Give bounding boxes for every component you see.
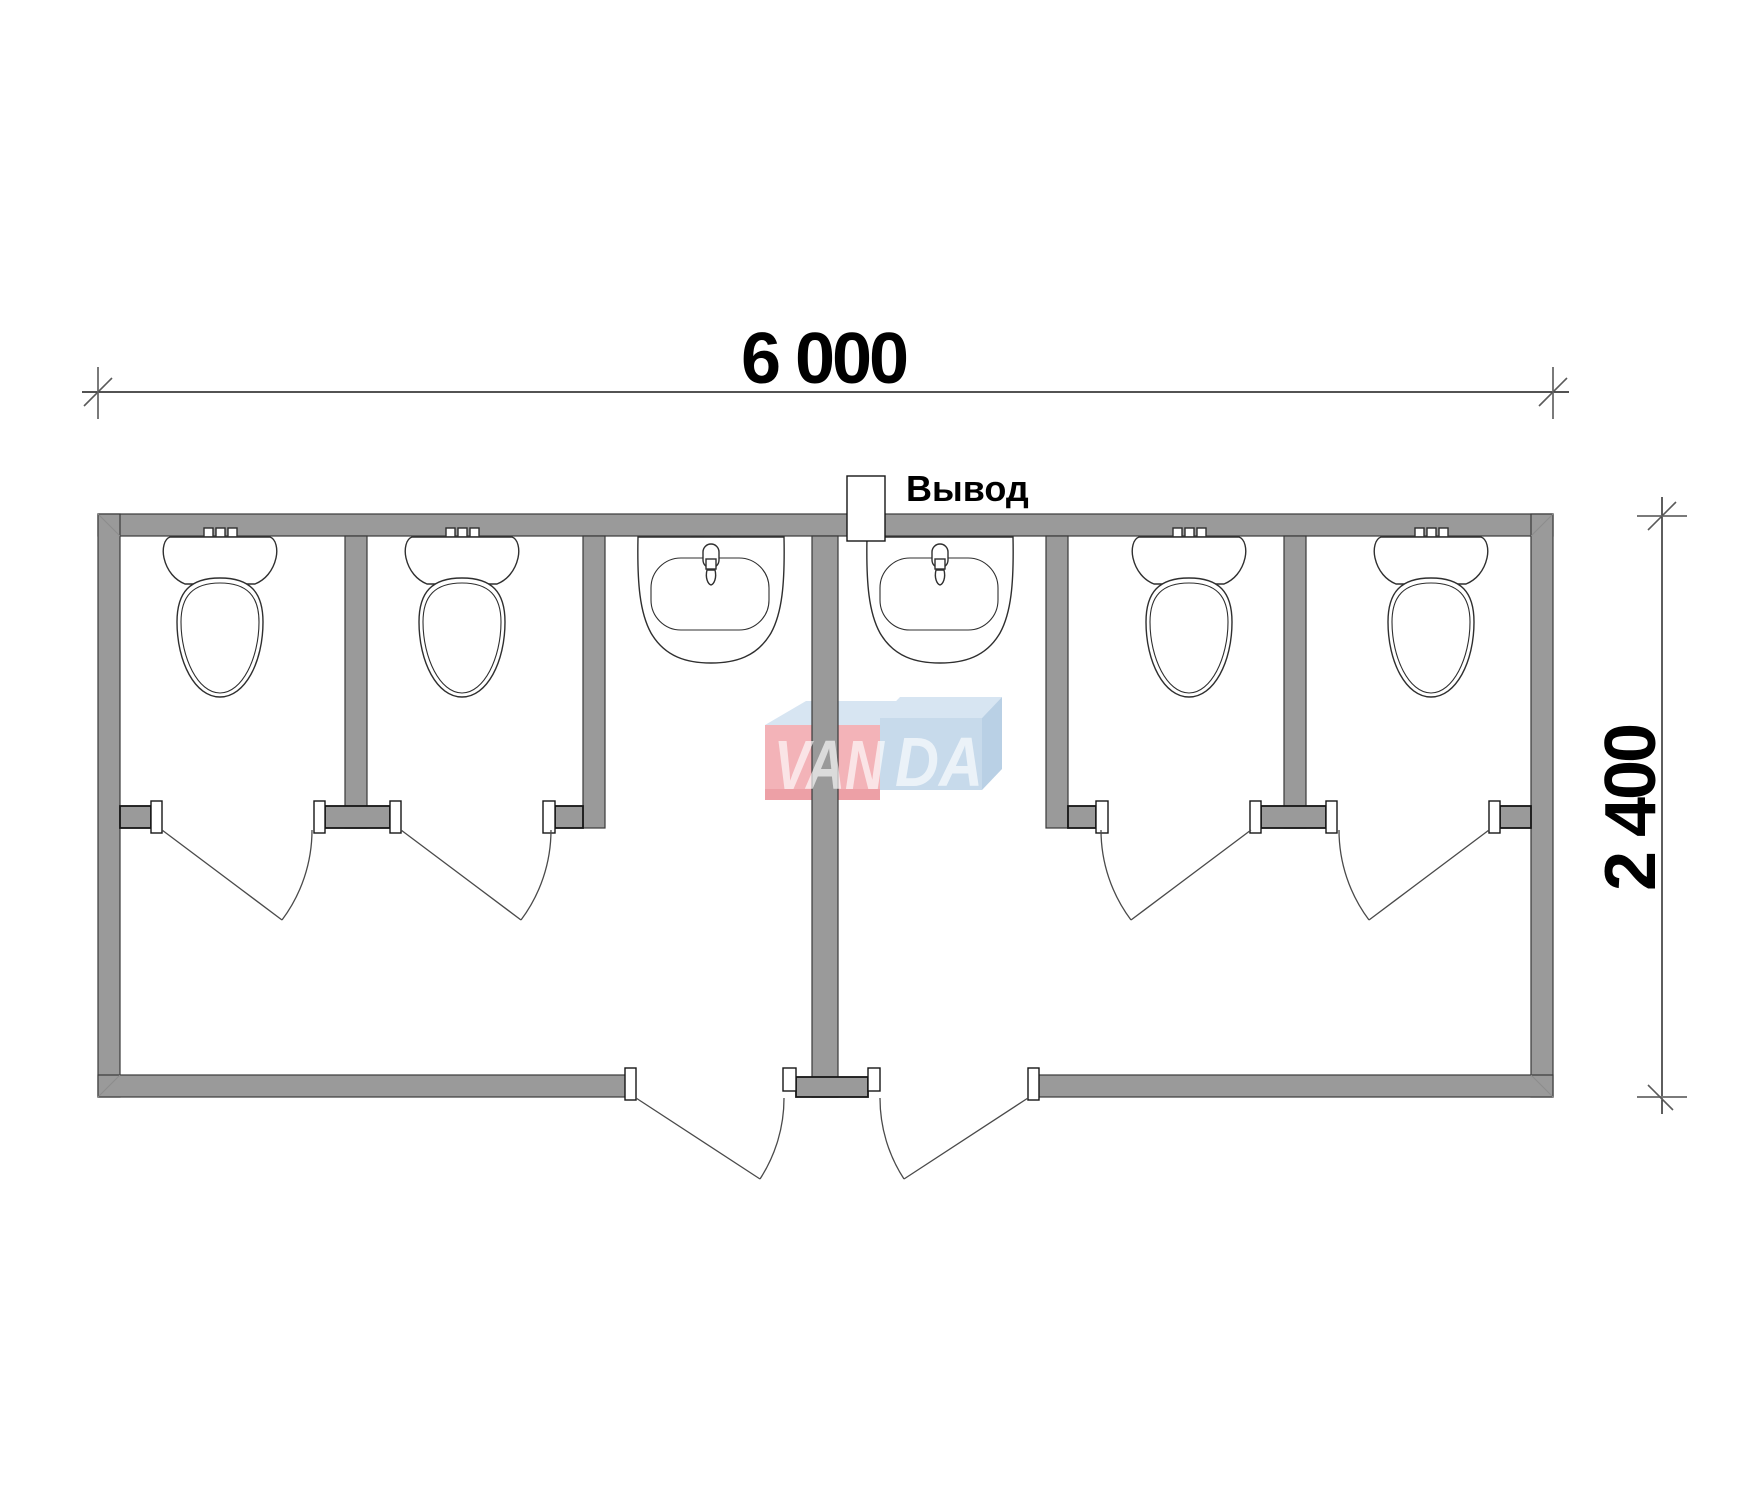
right-dimension: 2 400 (1591, 497, 1687, 1114)
width-dimension-text: 6 000 (741, 319, 909, 399)
entrance-right-jamb-inner (868, 1068, 880, 1091)
entrance-right-jamb-outer (1028, 1068, 1039, 1100)
watermark-text-da: DA (895, 723, 983, 801)
right-wall-door-stub (1500, 806, 1531, 828)
stall-partition-4 (1284, 536, 1306, 828)
entrance-door-left-swing-arc (760, 1098, 784, 1179)
toilet-bowl (1388, 578, 1474, 697)
stall-door-1-leaf (162, 830, 282, 920)
stall-door-3-jamb-right (1250, 801, 1261, 833)
left-wall-door-stub (120, 806, 151, 828)
stall-door-3 (1101, 830, 1251, 920)
toilet-2 (405, 528, 519, 697)
entrance-door-right-leaf (904, 1098, 1028, 1179)
stall-door-4-jamb-right (1489, 801, 1500, 833)
stall-door-3-jamb-left (1096, 801, 1108, 833)
floor-plan-drawing: 6 000 2 400 (0, 0, 1763, 1503)
stall-door-2-jamb-right (543, 801, 555, 833)
toilet-flush-button (1197, 528, 1206, 537)
toilet-tank (405, 537, 519, 584)
toilet-bowl (177, 578, 263, 697)
stall-door-2-swing-arc (521, 830, 551, 920)
entrance-left-jamb-inner (783, 1068, 796, 1091)
entrance-left-jamb-outer (625, 1068, 636, 1100)
toilet-4 (1374, 528, 1488, 697)
bottom-wall-left (98, 1075, 626, 1097)
sink-faucet-spout (935, 570, 944, 585)
sink-2 (867, 537, 1013, 663)
stall-partition-2 (583, 536, 605, 828)
stall-partition-4-tee (1261, 806, 1326, 828)
top-wall (98, 514, 1553, 536)
height-dimension-text: 2 400 (1591, 723, 1671, 891)
toilet-tank (1374, 537, 1488, 584)
stall-door-2-leaf (401, 830, 521, 920)
toilet-flush-button (228, 528, 237, 537)
toilet-3 (1132, 528, 1246, 697)
outlet-box (847, 476, 885, 541)
outlet-label: Вывод (906, 468, 1029, 509)
center-entrance-tee (796, 1077, 868, 1097)
toilet-flush-button (1173, 528, 1182, 537)
stall-door-1-jamb-left (151, 801, 162, 833)
toilet-flush-button (458, 528, 467, 537)
sink-1 (638, 537, 784, 663)
toilet-bowl (419, 578, 505, 697)
toilet-flush-button (446, 528, 455, 537)
toilet-flush-button (1415, 528, 1424, 537)
stall-door-2 (401, 830, 551, 920)
toilet-flush-button (204, 528, 213, 537)
toilet-flush-button (1185, 528, 1194, 537)
stall-door-4-jamb-left (1326, 801, 1337, 833)
center-partition-wall (812, 536, 838, 1097)
stall-door-3-leaf (1131, 830, 1251, 920)
left-wall (98, 514, 120, 1097)
toilet-tank (163, 537, 277, 584)
bottom-wall-right (1038, 1075, 1553, 1097)
stall-partition-3-stub (1068, 806, 1096, 828)
stall-partition-1-tee (325, 806, 390, 828)
sink-faucet-base (706, 559, 716, 569)
toilet-1 (163, 528, 277, 697)
stall-door-1-jamb-right (314, 801, 325, 833)
entrance-doors (636, 1098, 1028, 1179)
sink-faucet-base (935, 559, 945, 569)
stall-door-3-swing-arc (1101, 830, 1131, 920)
stall-partition-3 (1046, 536, 1068, 828)
vanda-watermark-letters: VAN DA (774, 723, 983, 804)
entrance-door-right-swing-arc (880, 1098, 904, 1179)
toilet-flush-button (1439, 528, 1448, 537)
stall-door-4-leaf (1369, 830, 1489, 920)
entrance-door-left (636, 1098, 784, 1179)
toilet-tank (1132, 537, 1246, 584)
toilet-flush-button (1427, 528, 1436, 537)
stall-door-1-swing-arc (282, 830, 312, 920)
watermark-blue-top-face (880, 697, 1002, 718)
stall-door-4-swing-arc (1339, 830, 1369, 920)
toilet-bowl (1146, 578, 1232, 697)
floor-plan-page: 6 000 2 400 (0, 0, 1763, 1503)
sink-faucet-spout (706, 570, 715, 585)
watermark-text-van: VAN (774, 726, 885, 804)
entrance-door-right (880, 1098, 1028, 1179)
stall-partition-1 (345, 536, 367, 828)
toilet-flush-button (216, 528, 225, 537)
stall-partition-2-stub (555, 806, 583, 828)
stall-door-2-jamb-left (390, 801, 401, 833)
entrance-door-left-leaf (636, 1098, 760, 1179)
stall-door-1 (162, 830, 312, 920)
toilet-flush-button (470, 528, 479, 537)
stall-door-4 (1339, 830, 1489, 920)
right-wall (1531, 514, 1553, 1097)
top-dimension: 6 000 (82, 319, 1569, 419)
